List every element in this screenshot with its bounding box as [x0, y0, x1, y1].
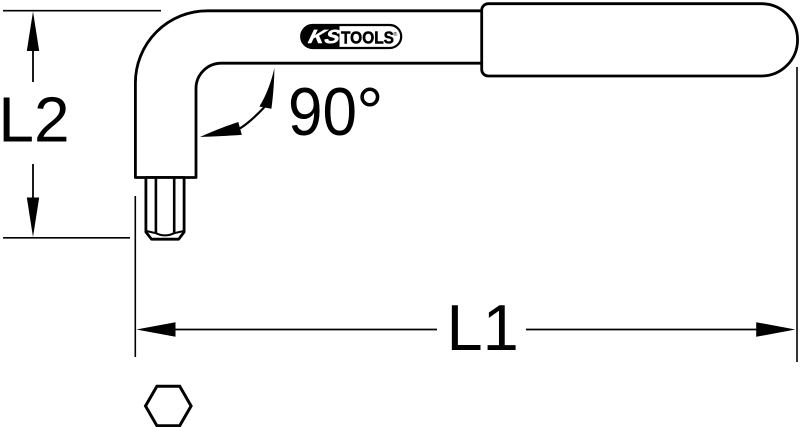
- svg-text:KS: KS: [306, 27, 342, 48]
- svg-text:90: 90: [288, 74, 357, 150]
- svg-text:TOOLS: TOOLS: [341, 27, 394, 47]
- svg-text:L2: L2: [0, 84, 70, 156]
- svg-text:®: ®: [393, 31, 397, 38]
- svg-text:L1: L1: [447, 291, 519, 364]
- svg-text:°: °: [356, 74, 383, 150]
